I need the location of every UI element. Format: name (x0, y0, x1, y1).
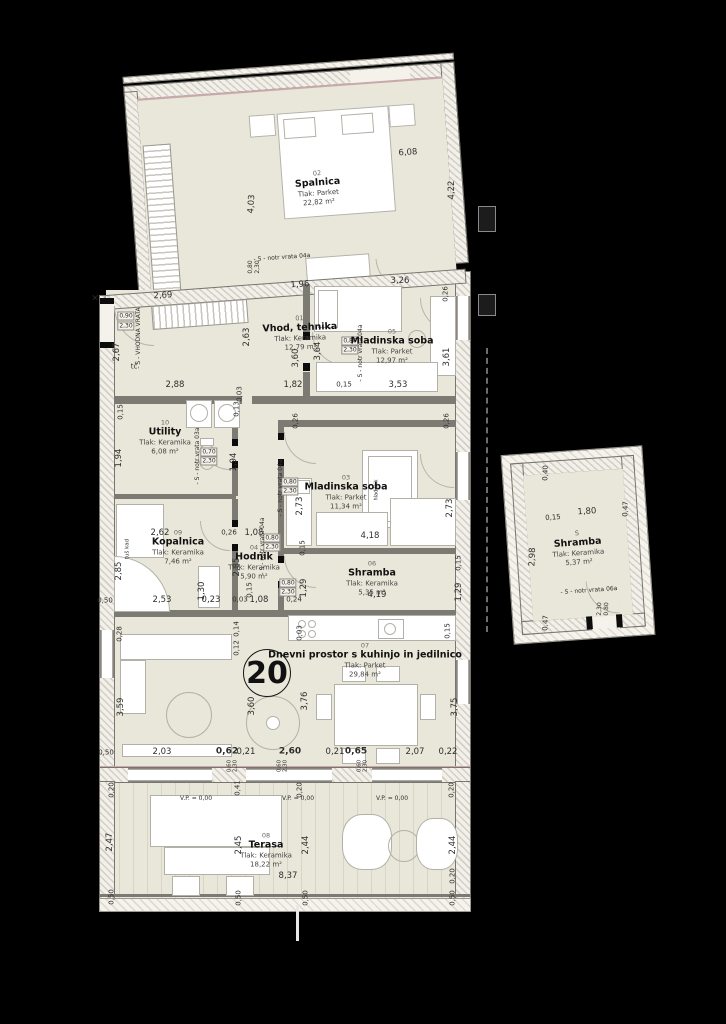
dim-label: 0,90 (117, 312, 134, 321)
dim-label: 2,85 (115, 562, 124, 581)
dim-label: 2,88 (166, 381, 185, 390)
room-floor-type: Tlak: Keramika (152, 548, 204, 557)
dim-label: 0,20 (449, 782, 456, 798)
dim-label: 2,03 (153, 748, 172, 757)
room-name: Dnevni prostor s kuhinjo in jedilnico (268, 649, 462, 661)
washer-drum (190, 404, 208, 422)
room-id: 05 (350, 327, 433, 335)
dining-table (334, 684, 418, 746)
dim-label: 3,59 (117, 698, 126, 717)
dim-label: 2,67 (113, 343, 122, 362)
room-id: 10 (139, 418, 191, 426)
window (128, 768, 212, 782)
terrace-edge-band (100, 899, 470, 911)
room-id: 07 (268, 641, 462, 649)
dim-label: 0,14 (234, 621, 241, 637)
rug (166, 692, 212, 738)
dim-label: 4,22 (448, 181, 457, 200)
dim-label: 0,70 (200, 448, 217, 457)
dim-label: 3,76 (301, 692, 310, 711)
door-jamb (303, 363, 310, 371)
door-jamb (586, 616, 593, 629)
dim-label: 1,29 (300, 579, 309, 598)
dim-label: 0,15 (545, 514, 561, 522)
room-label-04: 04HodnikTlak: Keramika5,90 m² (228, 543, 280, 581)
dim-label: 0,47 (542, 615, 550, 631)
dim-label: × (91, 295, 99, 304)
dim-label: 0,50 (236, 890, 243, 906)
level-label: V.P. = 0,00 (282, 796, 314, 802)
dim-label: 0,26 (293, 413, 300, 429)
door-jamb (616, 614, 623, 627)
room-area: 5,90 m² (228, 572, 280, 581)
fan-hub (266, 716, 280, 730)
section-marker (478, 294, 496, 316)
door-jamb (232, 439, 238, 446)
room-floor-type: Tlak: Parket (350, 347, 433, 356)
cooktop-burner (308, 630, 316, 638)
room-area: 29,84 m² (268, 670, 462, 679)
dim-label: 0,15 (118, 404, 125, 420)
dim-label: 0,50 (303, 890, 310, 906)
wall (284, 548, 456, 554)
apartment-number-badge: 20 (243, 649, 291, 697)
dim-label: 2,30 (283, 760, 289, 772)
room-label-08: 08TerasaTlak: Keramika18,22 m² (240, 831, 292, 869)
stool (172, 876, 200, 896)
dim-label: 1,29 (455, 583, 464, 602)
chair (376, 748, 400, 764)
dim-label: 2,30 (117, 322, 134, 331)
room-area: 12,97 m² (350, 356, 433, 365)
dim-label: 0,50 (97, 598, 113, 605)
chair (316, 694, 332, 720)
dim-label: 8,37 (279, 872, 298, 881)
wall (114, 494, 236, 499)
dim-label: 2,30 (597, 602, 603, 616)
window (456, 452, 470, 500)
room-name: Kopalnica (152, 536, 204, 548)
room-floor-type: Tlak: Keramika (346, 579, 398, 588)
door-jamb (100, 298, 114, 304)
room-area: 11,34 m² (304, 502, 387, 511)
room-name: Utility (139, 426, 191, 438)
entrance-opening (100, 304, 114, 342)
dim-label: 3,53 (389, 381, 408, 390)
dim-label: 2,69 (153, 291, 172, 301)
dim-label: 0,80 (279, 579, 296, 588)
dim-label: 1,94 (230, 453, 239, 472)
room-area: 18,22 m² (240, 860, 292, 869)
apartment-number: 20 (246, 656, 288, 691)
dim-label: 2,47 (106, 833, 115, 852)
room-area: 5,35 m² (346, 588, 398, 597)
cistern (200, 438, 214, 446)
window (246, 768, 332, 782)
dim-label: 0,15 (247, 582, 254, 598)
door-note-label: - S - notr vrata 04a (278, 459, 284, 516)
dim-label: 0,50 (450, 890, 457, 906)
wall (252, 396, 456, 404)
dim-label: 1,82 (284, 381, 303, 390)
wall (284, 420, 456, 427)
wardrobe (316, 362, 438, 392)
dim-label: 1,94 (115, 449, 124, 468)
dim-label: 4,18 (361, 532, 380, 541)
desk (316, 512, 388, 546)
room-name: Mladinska soba (304, 481, 387, 493)
room-id: 03 (304, 473, 387, 481)
room-floor-type: Tlak: Parket (304, 493, 387, 502)
dim-label: 3,26 (391, 277, 410, 286)
dim-label: 3,75 (451, 698, 460, 717)
pillow (341, 113, 374, 135)
room-floor-type: Tlak: Keramika (139, 438, 191, 447)
dim-label: tč (131, 364, 138, 371)
wall (232, 468, 238, 496)
room-floor-type: Tlak: Parket (268, 661, 462, 670)
dim-label: 2,60 (279, 748, 301, 757)
terrace-chair (342, 814, 392, 870)
room-label-10: 10UtilityTlak: Keramika6,08 m² (139, 418, 191, 456)
room-label-07: 07Dnevni prostor s kuhinjo in jedilnicoT… (268, 641, 462, 679)
dim-label: 0,50 (109, 889, 116, 905)
dim-label: 2,73 (446, 499, 455, 518)
dim-label: 0,47 (622, 501, 630, 517)
dim-label: 0,13 (234, 401, 241, 417)
dim-label: 0,22 (439, 748, 458, 757)
dim-label: 0,65 (345, 748, 367, 757)
dim-label: 0,40 (542, 465, 550, 481)
section-marker (478, 206, 496, 232)
pillow (283, 117, 316, 139)
room-name: Mladinska soba (350, 335, 433, 347)
room-floor-type: Tlak: Keramika (228, 563, 280, 572)
dim-label: 0,26 (443, 286, 450, 302)
room-id: 04 (228, 543, 280, 551)
sofa (120, 634, 232, 660)
dim-label: 2,44 (449, 836, 458, 855)
dim-label: 0,12 (234, 640, 241, 656)
room-id: 08 (240, 831, 292, 839)
cooktop-burner (308, 620, 316, 628)
dim-label: 0,20 (109, 782, 116, 798)
room-label-S: SShrambaTlak: Keramika5,37 m² (551, 527, 605, 568)
dim-label: 0,15 (445, 623, 452, 639)
dim-label: 0,80 (604, 602, 610, 616)
room-name: Terasa (240, 839, 292, 851)
door-jamb (278, 433, 284, 440)
room-label-01: 01Vhod, tehnikaTlak: Keramika12,79 m² (262, 313, 338, 353)
dim-label: 0,15 (300, 540, 307, 556)
door-note-label: - S - VHODNA VRATA (136, 307, 142, 368)
room-label-06: 06ShrambaTlak: Keramika5,35 m² (346, 559, 398, 597)
dim-label: 0,21 (237, 748, 256, 757)
dim-label: 0,28 (117, 626, 124, 642)
room-area: 7,46 m² (152, 557, 204, 566)
door-note-label: - S - notr vrata 03a (195, 427, 201, 484)
level-label: V.P. = 0,00 (180, 796, 212, 802)
dim-label: 2,07 (406, 748, 425, 757)
dim-label: 0,21 (326, 748, 345, 757)
dim-label: 0,15 (336, 382, 352, 389)
window (100, 630, 114, 678)
dim-label: 3,61 (443, 348, 452, 367)
room-name: Hodnik (228, 551, 280, 563)
dim-label: 0,03 (297, 625, 304, 641)
terrace-side-wall (456, 782, 470, 898)
level-label: V.P. = 0,00 (376, 796, 408, 802)
room-name: Shramba (346, 567, 398, 579)
dim-label: 2,73 (296, 497, 305, 516)
dim-label: 0,23 (202, 596, 221, 605)
dim-label: 2,30 (279, 588, 296, 597)
nightstand (388, 104, 416, 128)
terrace-edge (100, 894, 470, 897)
room-id: 06 (346, 559, 398, 567)
dim-label: 0,24 (286, 597, 302, 604)
dim-label: 0,20 (450, 868, 457, 884)
nightstand (249, 114, 277, 138)
dim-label: 2,30 (233, 760, 239, 772)
dim-label: 0,62 (216, 748, 238, 757)
dim-label: 2,30 (255, 260, 261, 273)
window (456, 296, 470, 340)
door-jamb (232, 520, 238, 527)
left-wall (100, 296, 114, 775)
connector-line (296, 905, 299, 941)
sink-bowl (384, 623, 396, 635)
dim-label: 1,96 (290, 280, 309, 290)
room-label-02: 02SpalnicaTlak: Parket22,82 m² (294, 168, 342, 209)
chair (420, 694, 436, 720)
dim-label: 1,80 (577, 507, 596, 517)
sh-wall (620, 614, 645, 628)
room-label-03: 03Mladinska sobaTlak: Parket11,34 m² (304, 473, 387, 511)
room-area: 6,08 m² (139, 447, 191, 456)
dim-label: 0,41 (235, 780, 242, 796)
dim-label: 0,26 (444, 413, 451, 429)
dim-label: 0,26 (221, 530, 237, 537)
room-label-09: 09KopalnicaTlak: Keramika7,46 m² (152, 528, 204, 566)
wall (232, 499, 238, 521)
dim-label: 4,03 (247, 194, 257, 213)
room-floor-type: Tlak: Keramika (240, 851, 292, 860)
room-label-05: 05Mladinska sobaTlak: Parket12,97 m² (350, 327, 433, 365)
window (372, 768, 442, 782)
dim-label: tuš kad (125, 539, 131, 559)
dim-label: 2,53 (153, 596, 172, 605)
dim-label: 2,30 (363, 760, 369, 772)
dim-label: 0,03 (237, 386, 244, 402)
dim-label: 0,15 (456, 555, 463, 571)
wall (303, 372, 310, 398)
dim-label: 2,30 (200, 457, 217, 466)
floor-plan: 20 6,084,034,22- S - notr vrata 04a0,802… (0, 0, 726, 1024)
room-id: 09 (152, 528, 204, 536)
dim-label: 6,08 (398, 148, 417, 158)
dim-label: 2,63 (243, 328, 252, 347)
dim-label: 2,44 (302, 836, 311, 855)
dim-label: 2,98 (528, 547, 537, 566)
dim-label: 0,50 (98, 750, 114, 757)
boundary-dashes (486, 348, 488, 632)
dim-label: 3,60 (248, 697, 257, 716)
